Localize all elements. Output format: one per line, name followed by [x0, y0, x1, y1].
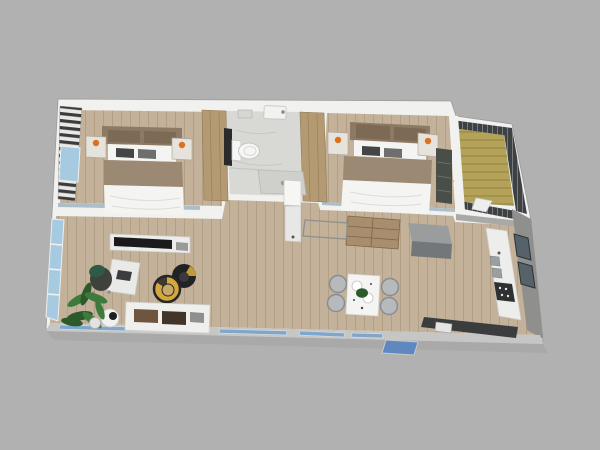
building — [46, 99, 548, 355]
yellow-chair-seat — [162, 284, 174, 296]
sink-basin-1 — [490, 256, 500, 266]
dining-chair-4 — [381, 298, 398, 315]
cutlery-3 — [361, 307, 363, 309]
table-centerpiece — [356, 288, 368, 298]
bed1-accent-pillow-1 — [116, 148, 134, 158]
burner-1 — [499, 287, 501, 289]
dining-chair-2 — [328, 295, 345, 312]
vanity-dark-panel — [224, 128, 232, 166]
bed2-blanket — [343, 156, 432, 184]
bed1-lamp-right — [179, 142, 185, 148]
dining-chair-1 — [330, 276, 347, 293]
sofa-cushion-brown — [134, 309, 158, 323]
bed2-nightstand-left — [328, 132, 348, 155]
bed2-accent-pillow-1 — [362, 146, 380, 156]
cutlery-2 — [370, 283, 372, 285]
window-strip-5 — [351, 333, 383, 338]
bed2-lamp-left — [335, 137, 341, 143]
cutlery-1 — [353, 299, 355, 301]
burner-2 — [505, 288, 507, 290]
dishwasher — [435, 322, 452, 333]
soap-tray — [238, 110, 252, 118]
side-table-tray — [109, 312, 117, 320]
island-cabinet-front — [411, 241, 452, 259]
entry-step — [382, 340, 418, 355]
sink-faucet — [281, 110, 285, 114]
dining-chair-3 — [382, 279, 399, 296]
burner-3 — [501, 294, 503, 296]
kitchen-faucet — [498, 252, 501, 255]
dining-set — [328, 274, 399, 316]
bed1-cushion-left — [108, 130, 140, 143]
bed1-nightstand-left — [86, 136, 106, 158]
bedroom1-window-glass — [59, 146, 80, 182]
bed1-nightstand-right — [172, 138, 192, 160]
floorplan-canvas — [0, 0, 600, 450]
bed2-lamp-right — [425, 138, 431, 144]
sofa-cushion-gray — [190, 312, 204, 323]
chair-caster-2 — [107, 290, 110, 293]
burner-4 — [507, 295, 509, 297]
black-chair-seat — [179, 272, 189, 282]
bed1-blanket — [104, 160, 183, 187]
floor-plan-render — [0, 0, 600, 450]
island-cabinet-top — [408, 223, 452, 244]
utility-column-top — [284, 180, 301, 206]
bed1-lamp-left — [93, 140, 99, 146]
bed2-nightstand-right — [418, 133, 438, 157]
kitchen-window-1 — [514, 234, 531, 260]
bed1-accent-pillow-2 — [138, 149, 156, 159]
utility-column-detail — [292, 236, 295, 239]
tv-side-speaker — [176, 242, 188, 251]
bed2-cushion-left — [356, 124, 390, 140]
bed2-accent-pillow-2 — [384, 148, 402, 158]
sofa-cushion-dark — [162, 311, 186, 325]
kitchen-window-2 — [518, 262, 535, 288]
sink-basin-2 — [492, 268, 502, 278]
plant-pot — [90, 318, 101, 329]
bed1-cushion-right — [144, 131, 176, 144]
stove — [494, 282, 515, 302]
